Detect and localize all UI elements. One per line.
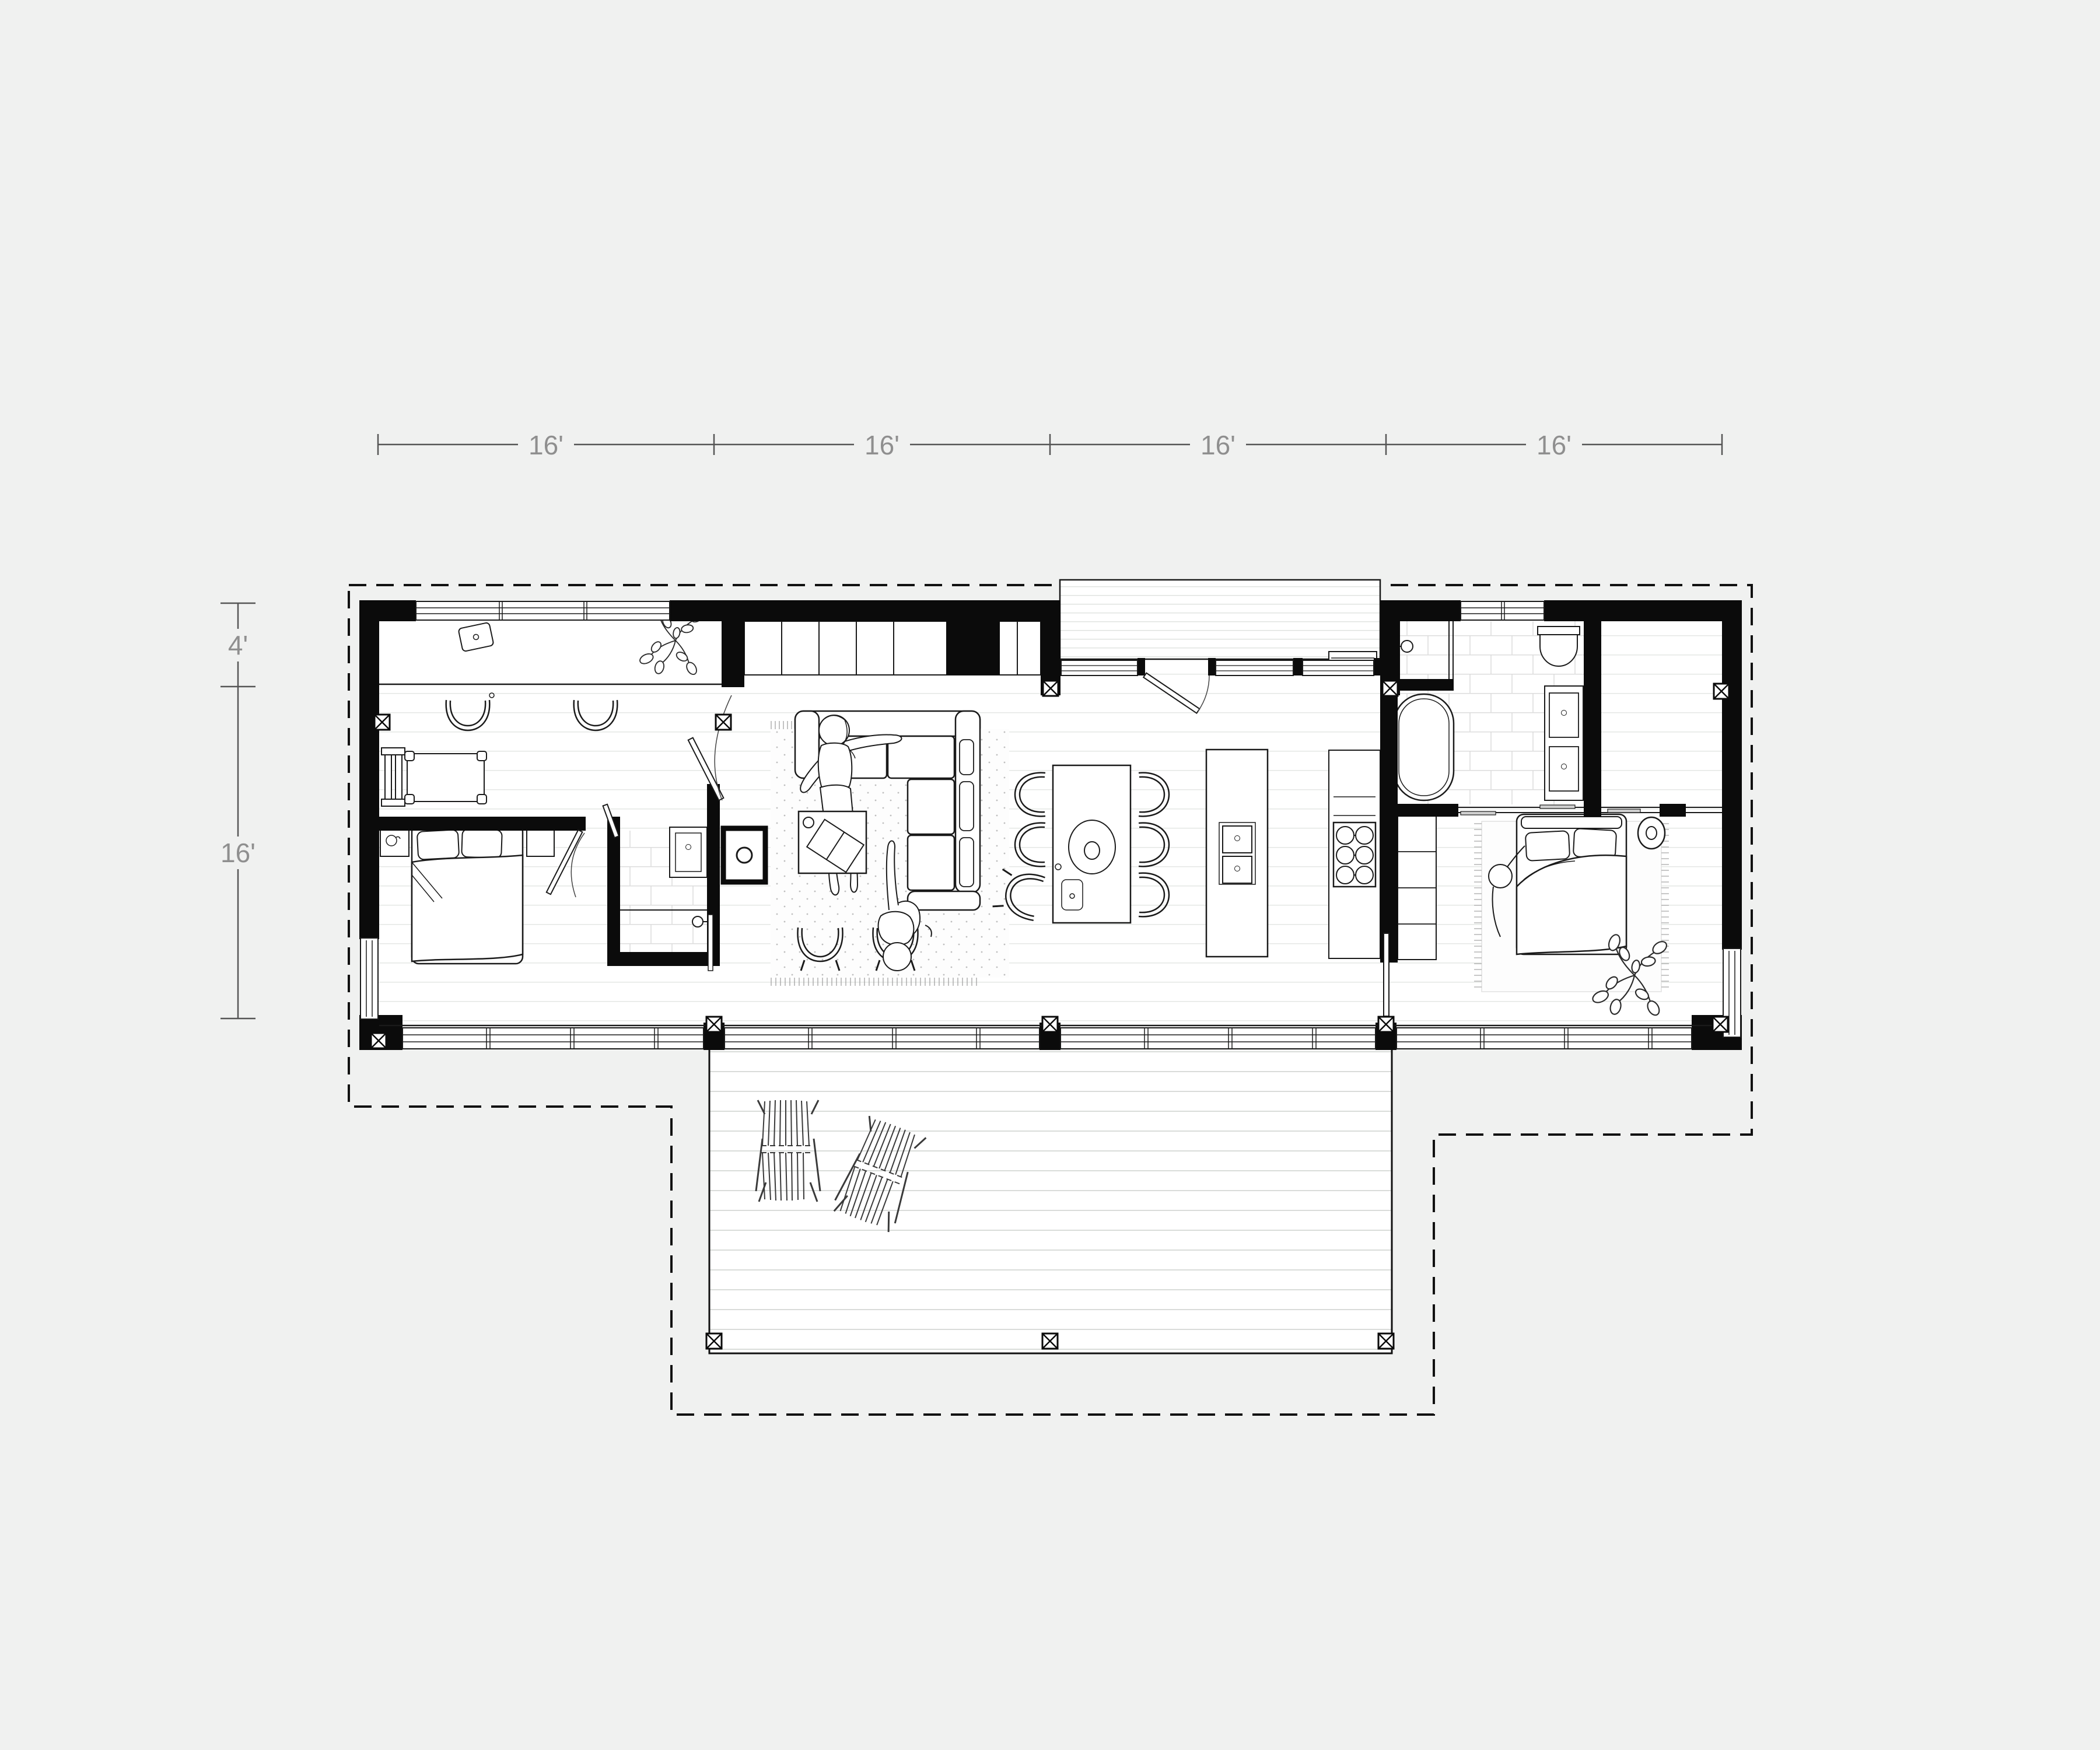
island-sink[interactable] bbox=[1219, 822, 1255, 884]
freestanding-tub bbox=[1394, 694, 1454, 800]
lamp bbox=[386, 835, 397, 846]
deck-column-marker-left bbox=[706, 1333, 722, 1349]
dim-label-left-2: 16' bbox=[220, 838, 256, 868]
floor-plan-drawing: 16' 16' 16' 16' 4' 16' bbox=[0, 0, 2100, 1750]
deck-column-marker-right bbox=[1378, 1333, 1394, 1349]
cooktop[interactable] bbox=[1333, 822, 1375, 887]
bedroom1-wall bbox=[379, 817, 586, 831]
deck bbox=[706, 1050, 1394, 1353]
pillow bbox=[417, 829, 459, 860]
faucet bbox=[686, 845, 691, 850]
person-head bbox=[883, 943, 911, 971]
shower-handle[interactable] bbox=[1401, 640, 1413, 652]
shower-handle[interactable] bbox=[692, 916, 703, 927]
living-closet bbox=[744, 621, 1041, 675]
coffee-table[interactable] bbox=[799, 811, 866, 873]
dim-label-top-3: 16' bbox=[1200, 430, 1235, 460]
bed-master bbox=[412, 825, 523, 964]
window-north-bath2 bbox=[1461, 601, 1544, 620]
dim-label-top-2: 16' bbox=[864, 430, 900, 460]
window-north-office bbox=[416, 601, 670, 620]
dim-label-top-4: 16' bbox=[1536, 430, 1571, 460]
pillow bbox=[1573, 828, 1616, 859]
blanket bbox=[412, 855, 523, 961]
shower1-glass-door[interactable] bbox=[708, 915, 713, 971]
bed-guest bbox=[1517, 814, 1626, 954]
pouf[interactable] bbox=[1638, 817, 1665, 849]
double-vanity bbox=[1545, 686, 1583, 800]
kitchen-bath-wall bbox=[1380, 621, 1398, 963]
wood-stove bbox=[723, 828, 765, 882]
dim-label-top-1: 16' bbox=[528, 430, 563, 460]
pillow bbox=[1525, 831, 1570, 861]
dim-label-left-1: 4' bbox=[228, 630, 248, 660]
pillow bbox=[461, 829, 502, 858]
tray bbox=[1062, 880, 1083, 910]
deck-column-marker-middle bbox=[1042, 1333, 1058, 1349]
hall-pier bbox=[722, 621, 744, 687]
nightstand-right bbox=[527, 827, 554, 856]
window-west bbox=[360, 938, 378, 1019]
entry-windows bbox=[1061, 660, 1374, 675]
entry-porch bbox=[1060, 580, 1380, 659]
workout-bench bbox=[381, 748, 487, 806]
pocket-door-leaf[interactable] bbox=[1384, 933, 1389, 1016]
closet-solid-section bbox=[946, 621, 1000, 675]
desk-chair-knob bbox=[489, 693, 494, 698]
floor-plan-page: 16' 16' 16' 16' 4' 16' bbox=[0, 0, 2100, 1750]
shower-stub-wall bbox=[1398, 679, 1454, 691]
